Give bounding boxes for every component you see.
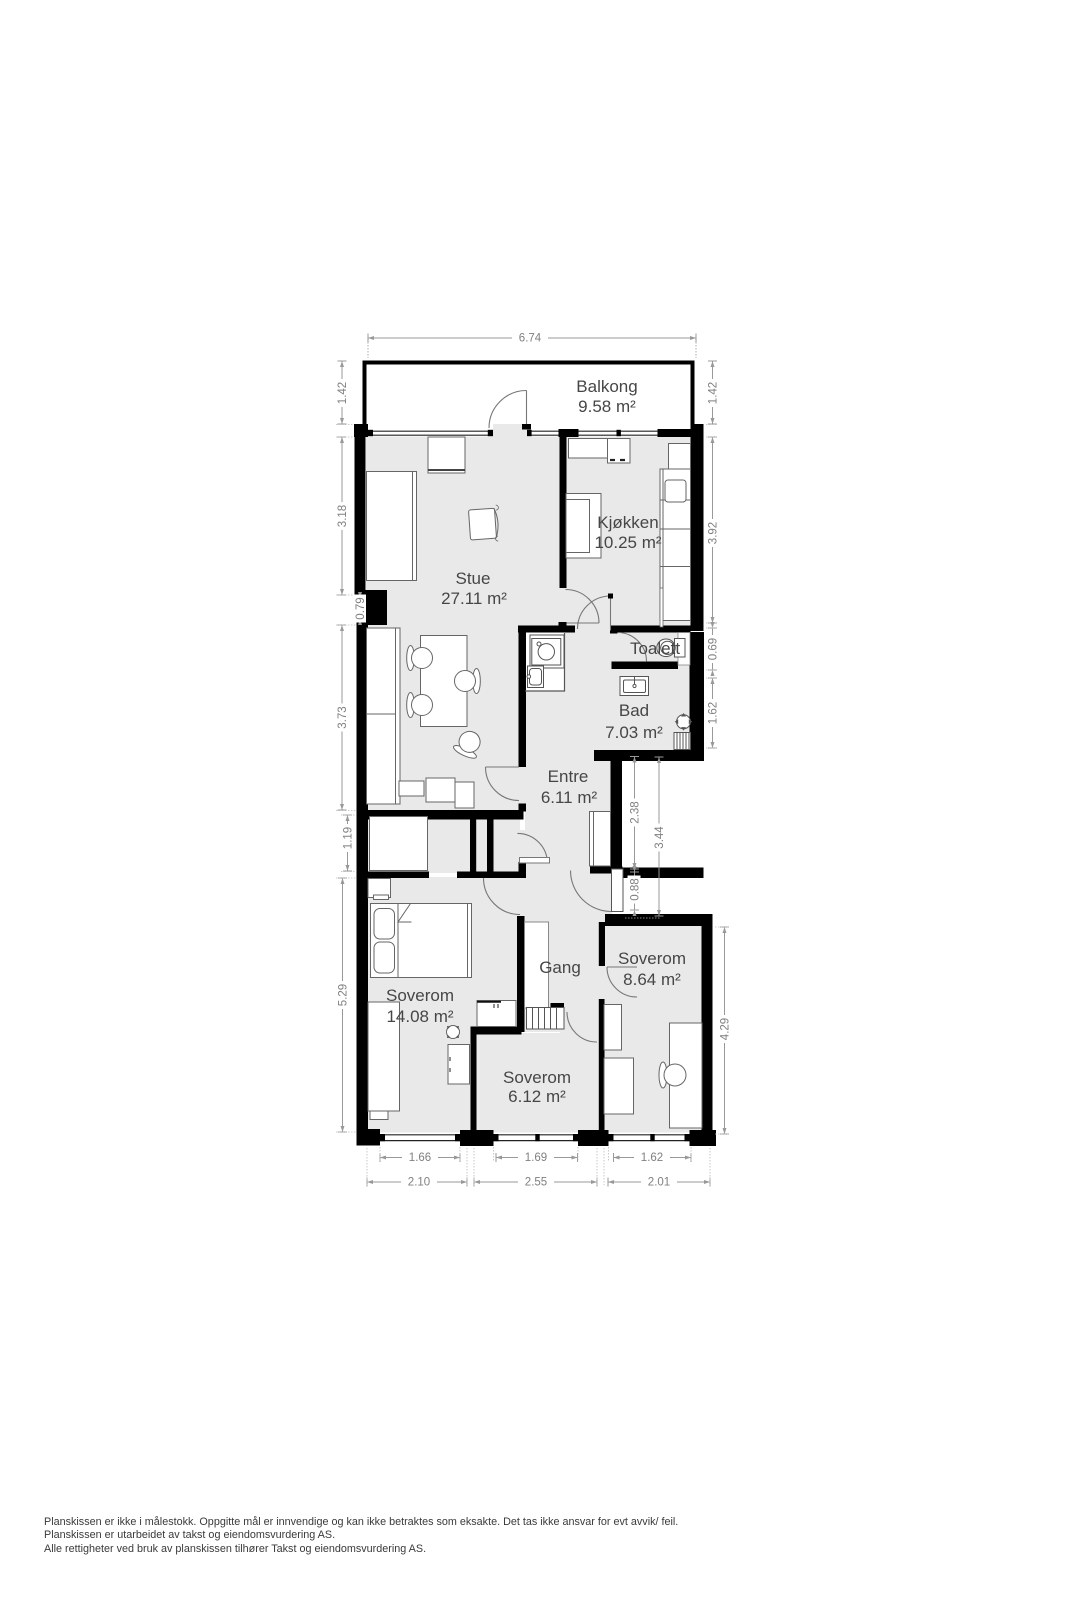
svg-text:Soverom: Soverom: [386, 986, 454, 1005]
svg-text:1.62: 1.62: [641, 1152, 663, 1164]
svg-text:2.38: 2.38: [630, 801, 642, 823]
svg-text:Stue: Stue: [456, 569, 491, 588]
svg-text:14.08 m²: 14.08 m²: [386, 1007, 453, 1026]
svg-text:1.66: 1.66: [409, 1152, 431, 1164]
svg-text:Bad: Bad: [619, 701, 649, 720]
svg-text:3.92: 3.92: [708, 522, 720, 544]
svg-text:1.19: 1.19: [343, 827, 355, 849]
svg-text:8.64 m²: 8.64 m²: [623, 970, 681, 989]
svg-text:Soverom: Soverom: [503, 1068, 571, 1087]
svg-text:6.74: 6.74: [519, 333, 542, 345]
svg-text:27.11 m²: 27.11 m²: [441, 589, 507, 608]
svg-text:Gang: Gang: [539, 958, 581, 977]
svg-text:7.03 m²: 7.03 m²: [605, 723, 663, 742]
svg-text:1.42: 1.42: [708, 382, 720, 404]
svg-text:3.73: 3.73: [337, 706, 349, 728]
svg-text:2.10: 2.10: [408, 1177, 430, 1189]
svg-text:Toalett: Toalett: [630, 639, 680, 658]
svg-text:2.55: 2.55: [525, 1177, 547, 1189]
svg-text:9.58 m²: 9.58 m²: [578, 397, 636, 416]
svg-text:Kjøkken: Kjøkken: [597, 513, 658, 532]
svg-text:1.69: 1.69: [525, 1152, 547, 1164]
svg-text:1.42: 1.42: [337, 382, 349, 404]
svg-text:Soverom: Soverom: [618, 949, 686, 968]
svg-text:Balkong: Balkong: [576, 377, 637, 396]
svg-text:3.44: 3.44: [654, 826, 666, 849]
svg-text:1.62: 1.62: [708, 702, 720, 724]
svg-text:6.11 m²: 6.11 m²: [541, 788, 598, 807]
svg-text:5.29: 5.29: [338, 984, 350, 1006]
svg-text:0.69: 0.69: [708, 638, 720, 660]
svg-text:10.25 m²: 10.25 m²: [594, 533, 661, 552]
svg-text:Entre: Entre: [548, 767, 589, 786]
svg-text:3.18: 3.18: [337, 505, 349, 527]
svg-text:2.01: 2.01: [648, 1177, 670, 1189]
svg-text:0.79: 0.79: [355, 597, 367, 619]
svg-text:0.88: 0.88: [630, 878, 642, 900]
svg-text:6.12 m²: 6.12 m²: [508, 1087, 566, 1106]
svg-text:4.29: 4.29: [720, 1018, 732, 1040]
